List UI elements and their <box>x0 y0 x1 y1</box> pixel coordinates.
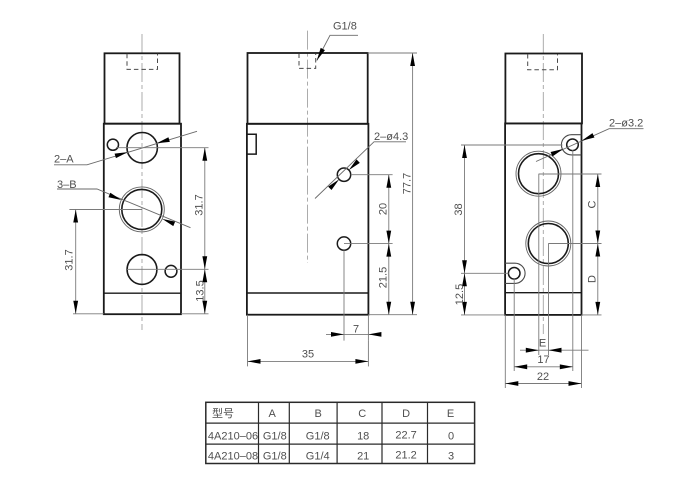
svg-text:17: 17 <box>537 354 549 366</box>
svg-text:31.7: 31.7 <box>194 194 206 215</box>
svg-text:20: 20 <box>378 203 390 215</box>
svg-text:D: D <box>402 408 410 420</box>
svg-text:3: 3 <box>448 451 454 463</box>
svg-text:B: B <box>315 408 322 420</box>
svg-text:E: E <box>539 338 546 350</box>
svg-text:22: 22 <box>537 371 549 383</box>
svg-text:2–A: 2–A <box>54 153 74 165</box>
svg-text:A: A <box>269 408 277 420</box>
svg-text:22.7: 22.7 <box>395 430 416 442</box>
svg-text:21.2: 21.2 <box>395 450 416 462</box>
svg-text:38: 38 <box>453 203 465 215</box>
svg-text:21.5: 21.5 <box>378 267 390 288</box>
svg-text:21: 21 <box>357 451 369 463</box>
svg-text:77.7: 77.7 <box>401 173 413 194</box>
svg-text:4A210–08: 4A210–08 <box>208 451 258 463</box>
svg-text:2–ø4.3: 2–ø4.3 <box>374 131 408 143</box>
svg-text:D: D <box>587 275 599 283</box>
svg-text:G1/4: G1/4 <box>306 451 330 463</box>
svg-text:12.5: 12.5 <box>454 284 466 305</box>
svg-text:18: 18 <box>357 431 369 443</box>
svg-text:G1/8: G1/8 <box>263 431 287 443</box>
svg-text:13.5: 13.5 <box>195 280 207 301</box>
svg-text:型号: 型号 <box>212 406 234 420</box>
svg-text:4A210–06: 4A210–06 <box>208 431 258 443</box>
svg-text:0: 0 <box>448 431 454 443</box>
svg-text:E: E <box>447 408 454 420</box>
svg-text:2–ø3.2: 2–ø3.2 <box>609 118 643 130</box>
svg-text:G1/8: G1/8 <box>306 431 330 443</box>
svg-text:G1/8: G1/8 <box>263 451 287 463</box>
svg-text:G1/8: G1/8 <box>333 21 357 33</box>
svg-text:7: 7 <box>353 324 359 336</box>
svg-text:C: C <box>358 408 366 420</box>
svg-text:C: C <box>587 200 599 208</box>
svg-text:35: 35 <box>302 349 314 361</box>
svg-text:31.7: 31.7 <box>64 249 76 270</box>
